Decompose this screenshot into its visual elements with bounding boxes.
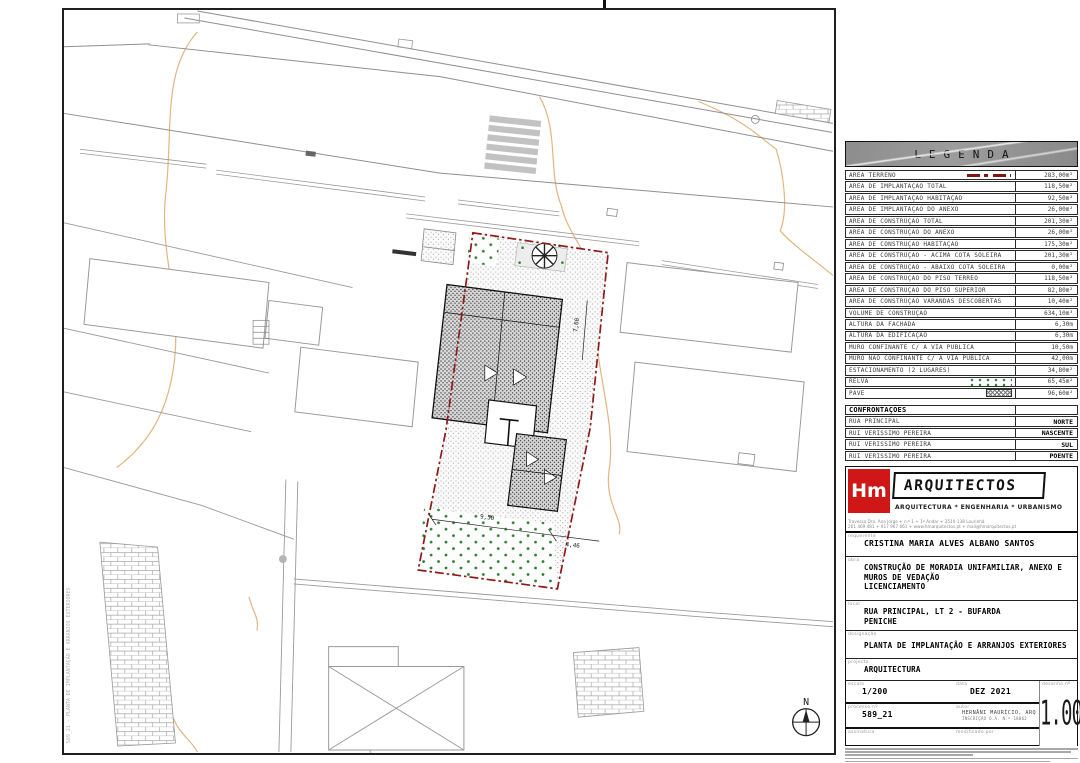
confrontacoes-table: CONFRONTAÇÕES RUA PRINCIPAL NORTE RUI VE… [845, 405, 1078, 462]
legend-row-value: 118,50m² [1015, 274, 1077, 282]
firm-name: ARQUITECTOS [892, 472, 1046, 499]
legend-row-value: 10,50m [1015, 343, 1077, 351]
obra-line: LICENCIAMENTO [846, 582, 1077, 592]
requerente-name: CRISTINA MARIA ALVES ALBANO SANTOS [846, 539, 1077, 549]
firm-address-line2: 261 469 481 + 917 967 661 + www.hmarquit… [846, 524, 1077, 529]
legend-row: ALTURA DA FACHADA 6,30m [845, 319, 1078, 329]
legend-row: ÁREA DE IMPLANTAÇÃO DO ANEXO 26,00m² [845, 204, 1078, 214]
legend-row-label: ÁREA DE CONSTRUÇÃO - ABAIXO COTA SOLEIRA [846, 264, 1015, 271]
legend-row-symbol [986, 389, 1012, 397]
confrontacao-neighbour: RUI VERISSIMO PEREIRA [846, 453, 1015, 460]
legend-row: PAVÊ 96,60m² [845, 388, 1078, 398]
parking-bay [421, 229, 456, 265]
legend-row-label: MURO CONFINANTE C/ A VIA PÚBLICA [846, 344, 1015, 351]
projecto-text: ARQUITECTURA [846, 665, 1077, 675]
fine-print-line [845, 761, 1050, 763]
desenho-number: 1.00 [1040, 697, 1067, 731]
desenho-number-box: desenho nº 1.00 [1039, 681, 1077, 746]
legend-row-value: 42,00m [1015, 355, 1077, 363]
legend-row: ÁREA DE CONSTRUÇÃO HABITAÇÃO 175,30m² [845, 239, 1078, 249]
dimension-label: 4,46 [565, 541, 580, 550]
legend-row-label: RELVA [846, 378, 970, 385]
legend-row: ESTACIONAMENTO (2 LUGARES) 34,80m² [845, 365, 1078, 375]
confrontacao-row: RUI VERISSIMO PEREIRA SUL [845, 439, 1078, 449]
title-column: LEGENDA ÁREA TERRENO 283,00m² ÁREA DE IM… [845, 0, 1078, 763]
legend-row-value: 201,30m² [1015, 251, 1077, 259]
legend-row-label: ÁREA DE CONSTRUÇÃO DO PISO TÉRREO [846, 275, 1015, 282]
legend-row-label: ESTACIONAMENTO (2 LUGARES) [846, 367, 1015, 374]
designacao-text: PLANTA DE IMPLANTAÇÃO E ARRANJOS EXTERIO… [846, 637, 1077, 651]
legend-row: RELVA 65,45m² [845, 377, 1078, 387]
legend-row: ÁREA DE CONSTRUÇÃO DO PISO TÉRREO 118,50… [845, 273, 1078, 283]
confrontacao-direction: NORTE [1015, 417, 1077, 425]
legend-header: LEGENDA [845, 141, 1078, 167]
legend-row-value: 0,00m² [1015, 263, 1077, 271]
legend-row-value: 65,45m² [1015, 378, 1077, 386]
legend-row-label: ALTURA DA FACHADA [846, 321, 1015, 328]
legend-row-label: ÁREA DE IMPLANTAÇÃO HABITAÇÃO [846, 195, 1015, 202]
north-arrow-icon: N [793, 697, 820, 735]
sidewalk-lines [80, 149, 818, 288]
fine-print-line [845, 758, 1078, 760]
section-local: local RUA PRINCIPAL, LT 2 - BUFARDA PENI… [846, 601, 1077, 631]
legend-row: MURO NÃO CONFINANTE C/ A VIA PÚBLICA 42,… [845, 354, 1078, 364]
legend-header-streaks [846, 142, 1077, 166]
title-block: Hm ARQUITECTOS ARQUITECTURA * ENGENHARIA… [845, 466, 1078, 746]
legend-row-value: 26,00m² [1015, 205, 1077, 213]
confrontacoes-header: CONFRONTAÇÕES [845, 405, 1078, 415]
obra-line: CONSTRUÇÃO DE MORADIA UNIFAMILIAR, ANEXO… [846, 563, 1077, 573]
legend-row-label: ÁREA DE IMPLANTAÇÃO TOTAL [846, 183, 1015, 190]
confrontacoes-rows: RUA PRINCIPAL NORTE RUI VERISSIMO PEREIR… [845, 416, 1078, 461]
site-plan-drawing: 9,50 4,46 7,60 N 589_21 - PLANTA DE IMPL… [64, 10, 834, 753]
road-lines [64, 11, 833, 207]
fine-print-line [845, 751, 1071, 753]
confrontacoes-title: CONFRONTAÇÕES [846, 406, 1015, 414]
fine-print-line [845, 754, 973, 756]
legend-row: ÁREA DE CONSTRUÇÃO - ABAIXO COTA SOLEIRA… [845, 262, 1078, 272]
legend-row-value: 96,60m² [1015, 389, 1077, 397]
lot: 9,50 4,46 7,60 [418, 229, 608, 589]
legend-row-label: VOLUME DE CONSTRUÇÃO [846, 310, 1015, 317]
plot-stamp: 589_21 - PLANTA DE IMPLANTAÇÃO E ARRANJO… [65, 587, 72, 743]
legend-row: ÁREA DE IMPLANTAÇÃO HABITAÇÃO 92,50m² [845, 193, 1078, 203]
confrontacao-direction: SUL [1015, 440, 1077, 448]
firm-address: Travessa Dra. Ana Jorge + n.º 1 + 1º And… [846, 519, 1077, 533]
legend-row-value: 6,30m [1015, 332, 1077, 340]
confrontacao-direction: POENTE [1015, 452, 1077, 460]
firm-block: Hm ARQUITECTOS ARQUITECTURA * ENGENHARIA… [846, 467, 1077, 519]
legend-row-label: ÁREA DE CONSTRUÇÃO DO ANEXO [846, 229, 1015, 236]
local-line: PENICHE [846, 617, 1077, 627]
legend-row-label: ÁREA TERRENO [846, 172, 967, 179]
legend-row-label: ÁREA DE CONSTRUÇÃO DO PISO SUPERIOR [846, 287, 1015, 294]
confrontacao-row: RUI VERISSIMO PEREIRA NASCENTE [845, 428, 1078, 438]
section-obra: obra CONSTRUÇÃO DE MORADIA UNIFAMILIAR, … [846, 557, 1077, 601]
legend-row: MURO CONFINANTE C/ A VIA PÚBLICA 10,50m [845, 342, 1078, 352]
tree-icon [532, 243, 557, 268]
legend-row-value: 201,30m² [1015, 217, 1077, 225]
fine-print-line [845, 748, 1078, 750]
legend-row-label: ÁREA DE CONSTRUÇÃO TOTAL [846, 218, 1015, 225]
section-projecto: projecto ARQUITECTURA [846, 659, 1077, 681]
legend-row-value: 82,80m² [1015, 286, 1077, 294]
svg-text:N: N [803, 697, 809, 708]
legend-row: ALTURA DA EDIFICAÇÃO 6,30m [845, 331, 1078, 341]
section-requerente: requerente CRISTINA MARIA ALVES ALBANO S… [846, 533, 1077, 557]
legend-row-value: 6,30m [1015, 320, 1077, 328]
legend-row-value: 634,10m³ [1015, 309, 1077, 317]
legend-row-value: 26,00m² [1015, 228, 1077, 236]
legend-row-label: PAVÊ [846, 390, 986, 397]
legend-row: VOLUME DE CONSTRUÇÃO 634,10m³ [845, 308, 1078, 318]
obra-line: MUROS DE VEDAÇÃO [846, 573, 1077, 583]
legend-row-value: 175,30m² [1015, 240, 1077, 248]
confrontacao-neighbour: RUA PRINCIPAL [846, 418, 1015, 425]
legend-row-label: ALTURA DA EDIFICAÇÃO [846, 332, 1015, 339]
legend-row: ÁREA TERRENO 283,00m² [845, 170, 1078, 180]
fine-print [845, 748, 1078, 763]
processo-value: 589_21 [846, 710, 954, 719]
legend-row-label: ÁREA DE CONSTRUÇÃO - ACIMA COTA SOLEIRA [846, 252, 1015, 259]
legend-row-label: ÁREA DE IMPLANTAÇÃO DO ANEXO [846, 206, 1015, 213]
legend-row-label: MURO NÃO CONFINANTE C/ A VIA PÚBLICA [846, 355, 1015, 362]
legend-row-value: 118,50m² [1015, 182, 1077, 190]
confrontacoes-header-value [1015, 406, 1077, 414]
legend-row-value: 283,00m² [1015, 171, 1077, 179]
confrontacao-neighbour: RUI VERISSIMO PEREIRA [846, 430, 1015, 437]
legend-row: ÁREA DE CONSTRUÇÃO DO ANEXO 26,00m² [845, 227, 1078, 237]
legend-row: ÁREA DE IMPLANTAÇÃO TOTAL 118,50m² [845, 181, 1078, 191]
label-assinatura: assinatura [846, 729, 954, 735]
site-plan-frame: 9,50 4,46 7,60 N 589_21 - PLANTA DE IMPL… [62, 8, 836, 755]
firm-logo: Hm [848, 469, 890, 513]
confrontacao-direction: NASCENTE [1015, 429, 1077, 437]
local-line: RUA PRINCIPAL, LT 2 - BUFARDA [846, 607, 1077, 617]
escala-value: 1/200 [846, 687, 954, 696]
legend-row: ÁREA DE CONSTRUÇÃO VARANDAS DESCOBERTAS … [845, 296, 1078, 306]
legend-row-label: ÁREA DE CONSTRUÇÃO HABITAÇÃO [846, 241, 1015, 248]
legend-row-label: ÁREA DE CONSTRUÇÃO VARANDAS DESCOBERTAS [846, 298, 1015, 305]
legend-row-value: 10,40m² [1015, 297, 1077, 305]
legend-table: ÁREA TERRENO 283,00m² ÁREA DE IMPLANTAÇÃ… [845, 170, 1078, 400]
firm-tagline: ARQUITECTURA * ENGENHARIA * URBANISMO [895, 504, 1062, 511]
zebra-crossing [484, 115, 541, 174]
label-desenho: desenho nº [1040, 681, 1077, 687]
legend-row: ÁREA DE CONSTRUÇÃO TOTAL 201,30m² [845, 216, 1078, 226]
legend-row: ÁREA DE CONSTRUÇÃO DO PISO SUPERIOR 82,8… [845, 285, 1078, 295]
confrontacao-row: RUA PRINCIPAL NORTE [845, 416, 1078, 426]
legend-row-value: 34,80m² [1015, 366, 1077, 374]
section-designacao: designação PLANTA DE IMPLANTAÇÃO E ARRAN… [846, 631, 1077, 659]
legend-row: ÁREA DE CONSTRUÇÃO - ACIMA COTA SOLEIRA … [845, 250, 1078, 260]
legend-row-value: 92,50m² [1015, 194, 1077, 202]
legend-row-symbol [970, 378, 1012, 386]
legend-row-symbol [967, 174, 1011, 177]
confrontacao-neighbour: RUI VERISSIMO PEREIRA [846, 441, 1015, 448]
confrontacao-row: RUI VERISSIMO PEREIRA POENTE [845, 451, 1078, 461]
architectural-sheet: 9,50 4,46 7,60 N 589_21 - PLANTA DE IMPL… [0, 0, 1080, 763]
